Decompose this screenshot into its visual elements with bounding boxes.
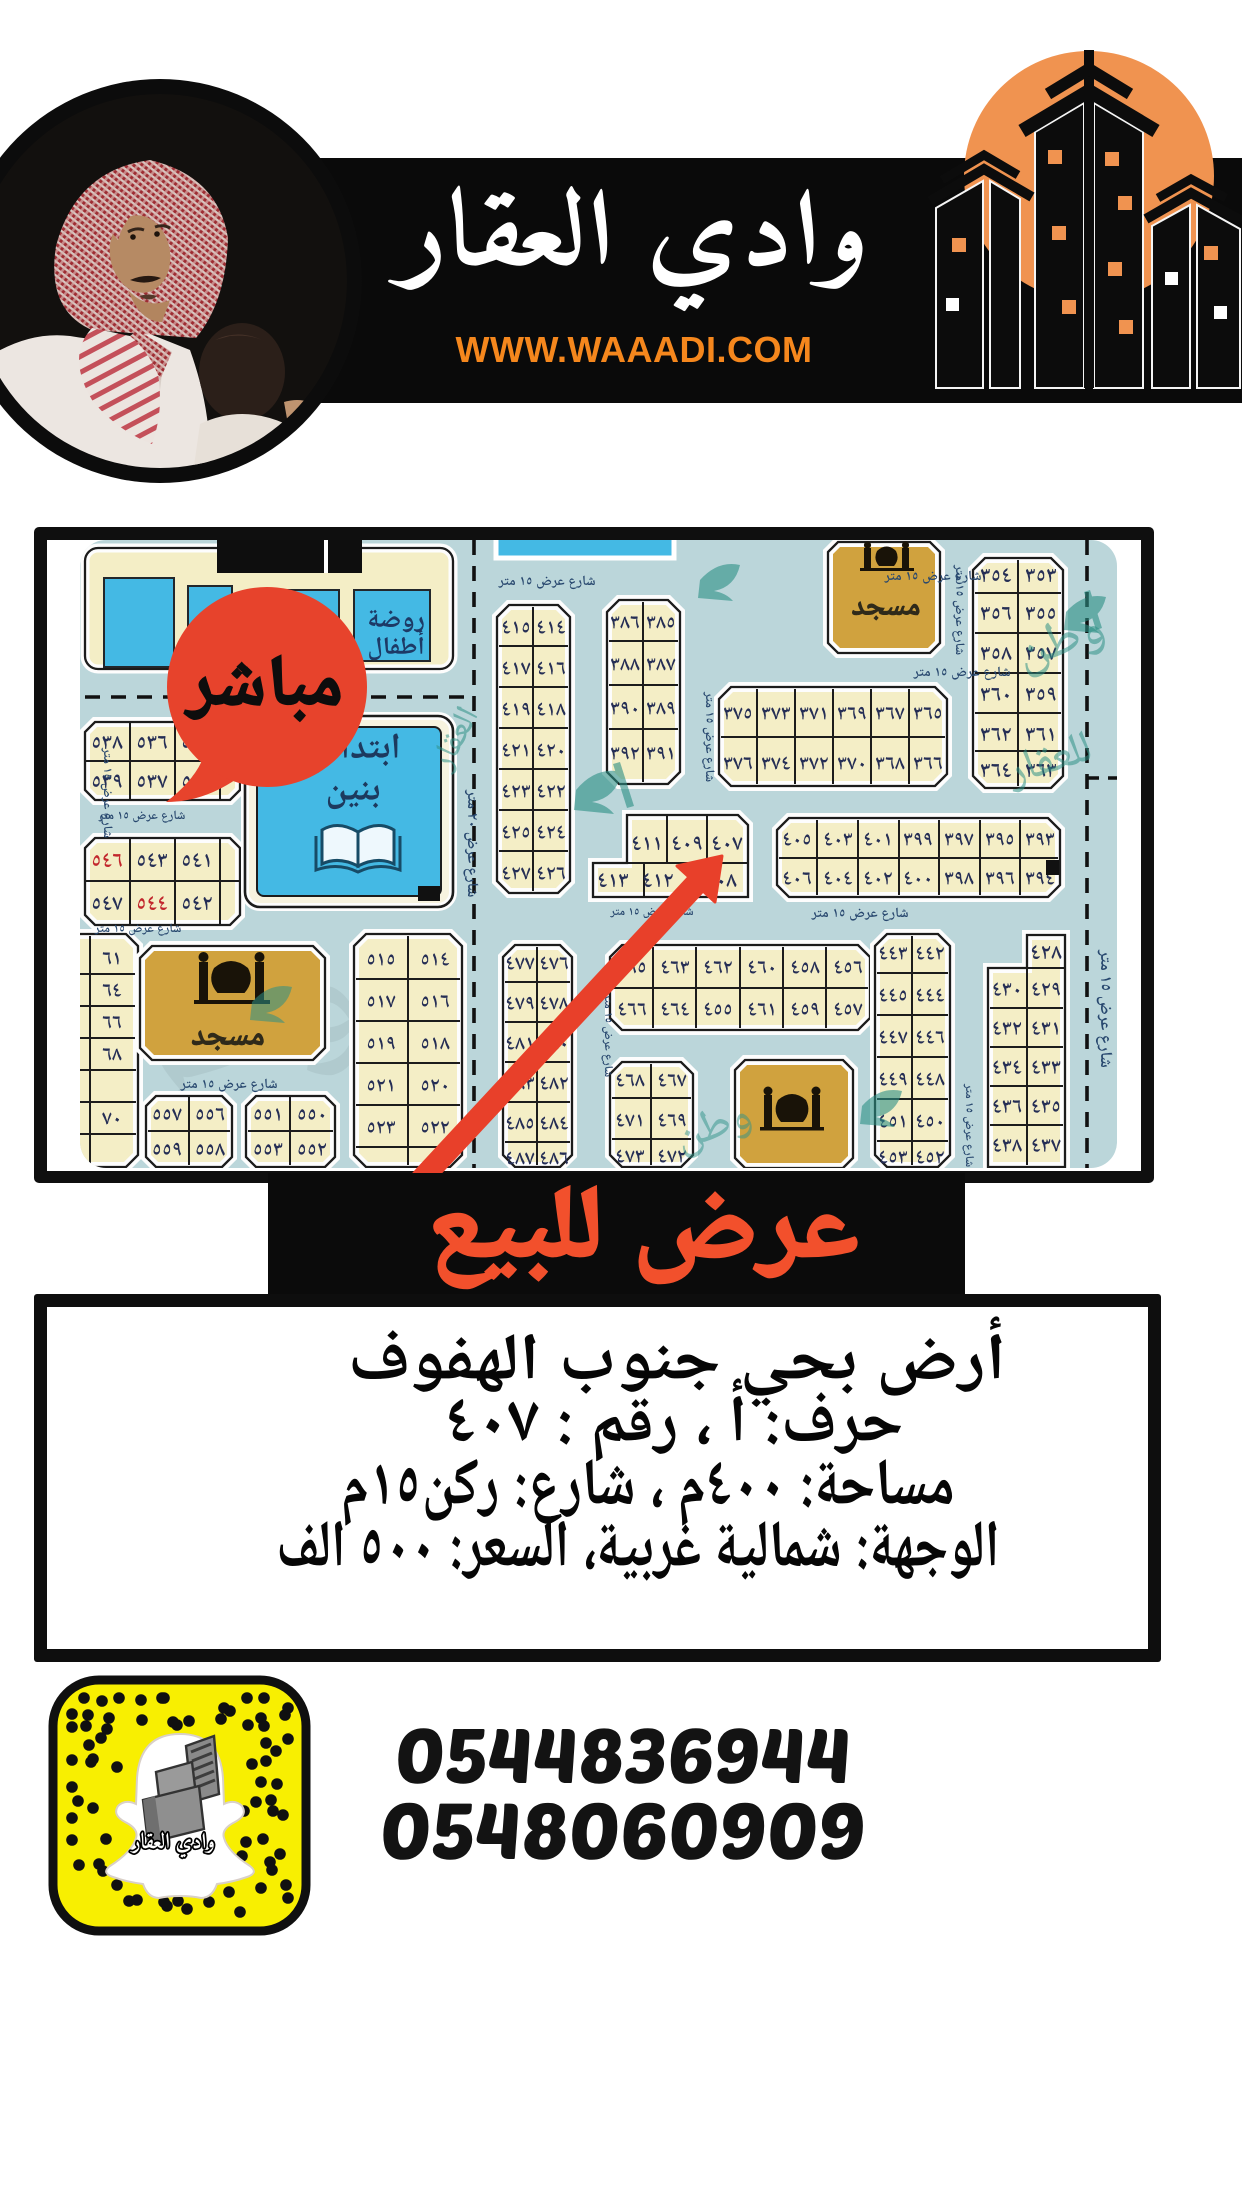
svg-text:WWW.WAAADI.COM: WWW.WAAADI.COM	[456, 329, 813, 370]
